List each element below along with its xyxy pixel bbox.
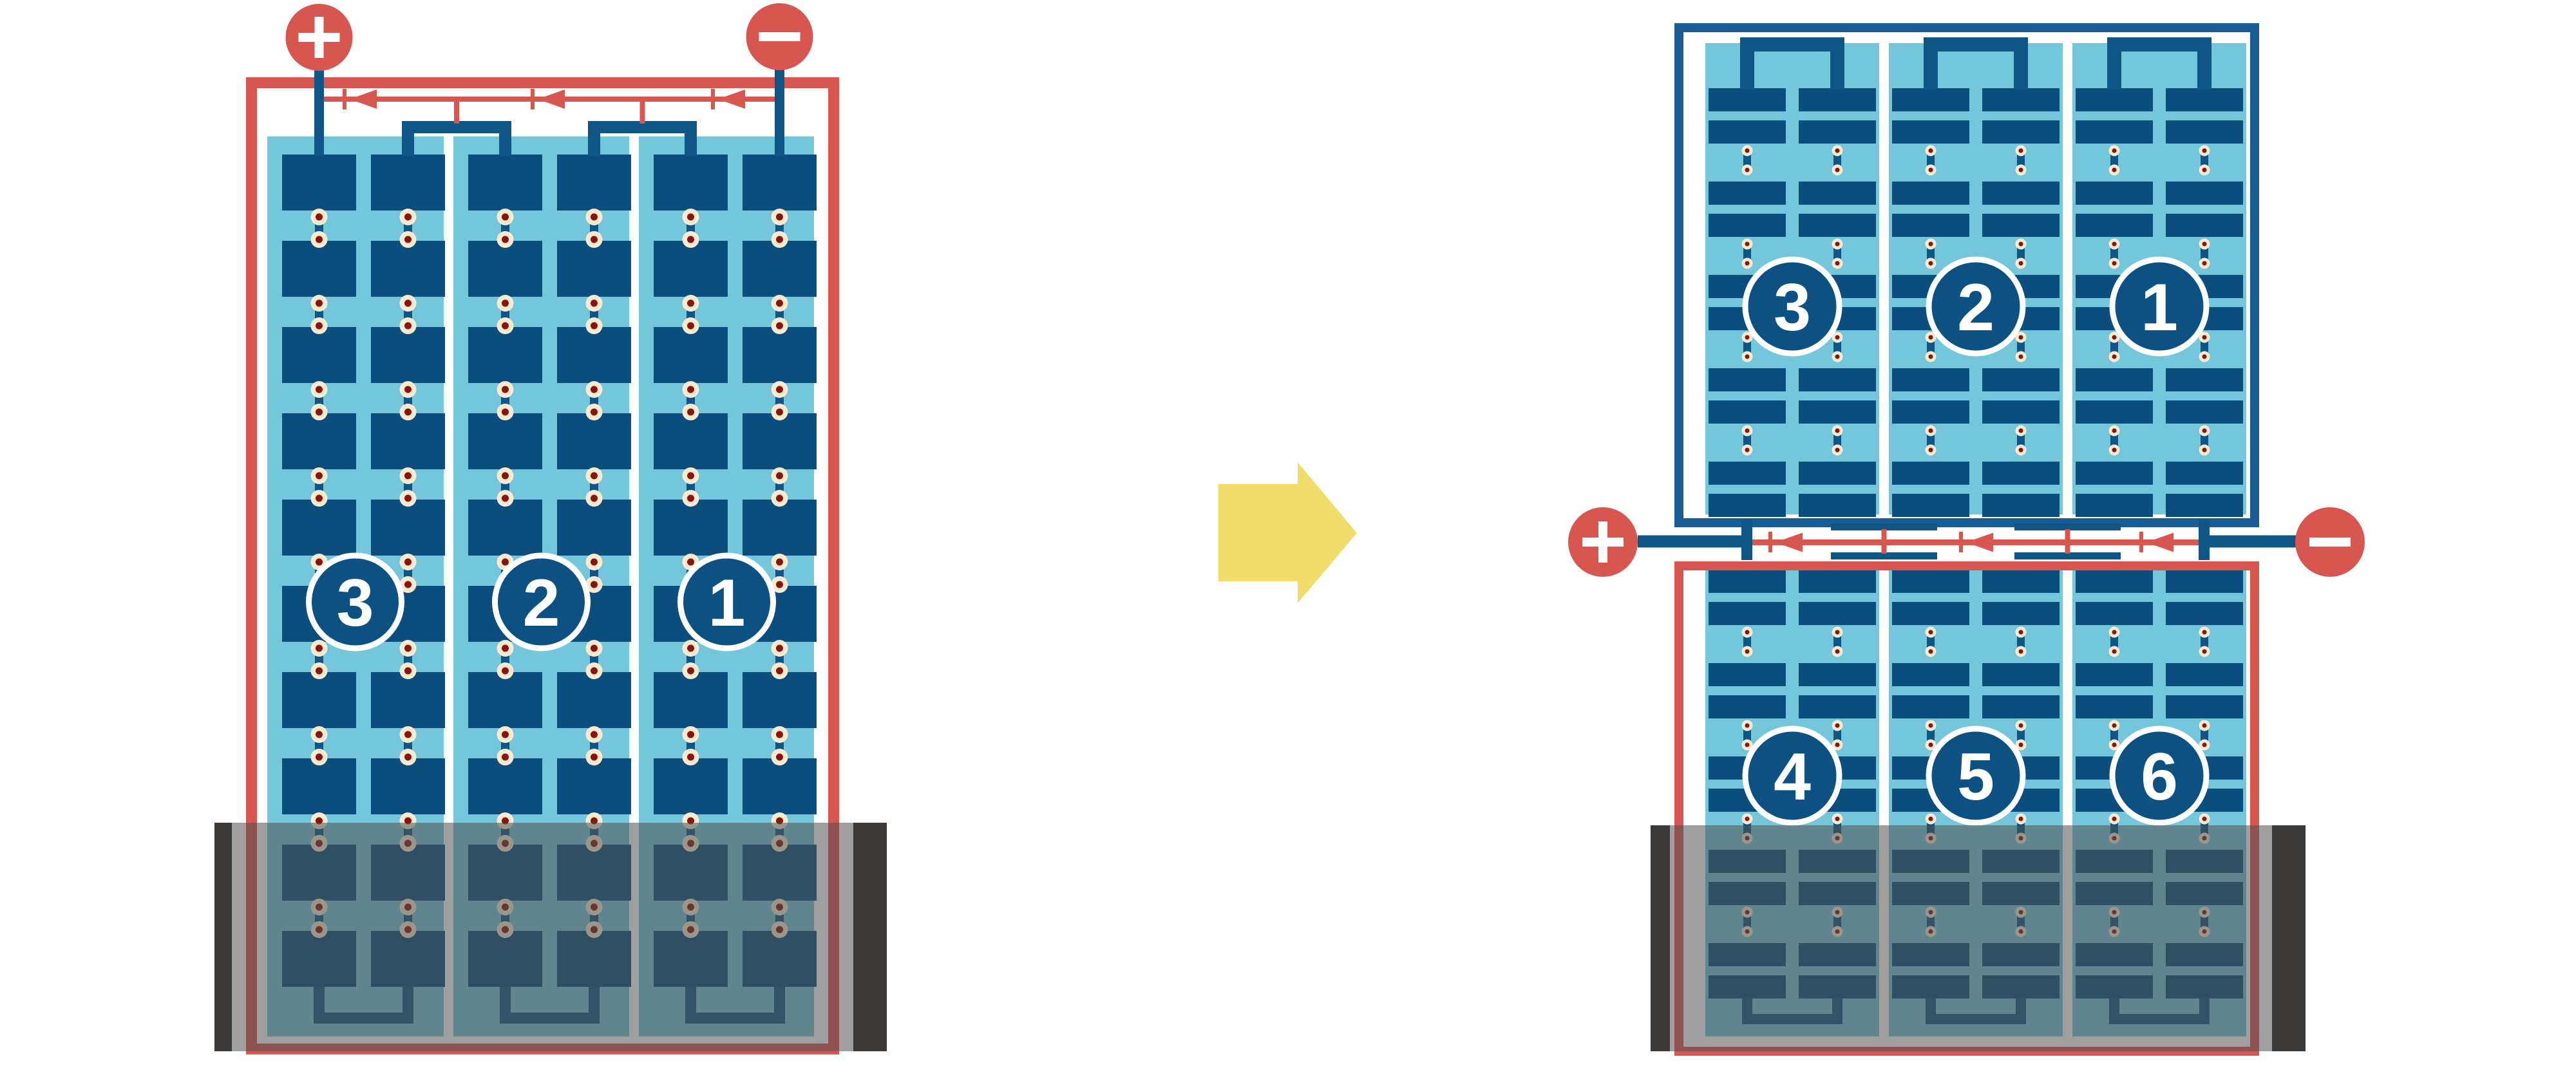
solder-dot-center bbox=[502, 668, 509, 675]
solar-cell bbox=[2166, 88, 2243, 111]
solder-dot-center bbox=[1835, 429, 1840, 433]
solder-dot-center bbox=[2112, 335, 2117, 340]
solder-dot-center bbox=[502, 236, 509, 243]
solder-dot-center bbox=[316, 323, 323, 330]
solder-dot-center bbox=[1929, 261, 1933, 266]
solar-cell bbox=[371, 413, 445, 469]
solder-dot-center bbox=[776, 645, 783, 652]
solar-cell bbox=[743, 500, 817, 556]
negative-terminal bbox=[746, 3, 813, 70]
solder-dot-center bbox=[502, 754, 509, 761]
solder-dot-center bbox=[776, 214, 783, 221]
solar-cell bbox=[1799, 695, 1876, 718]
string-number: 2 bbox=[523, 566, 560, 641]
minus-icon bbox=[2309, 538, 2351, 547]
solar-cell bbox=[371, 758, 445, 814]
solar-cell bbox=[743, 672, 817, 728]
solder-dot-center bbox=[2112, 724, 2117, 728]
solar-cell bbox=[743, 241, 817, 297]
solar-cell bbox=[1982, 214, 2060, 237]
solder-dot-center bbox=[1745, 168, 1750, 173]
solder-dot-center bbox=[404, 645, 412, 652]
solar-cell bbox=[1892, 570, 1969, 593]
solar-cell bbox=[1982, 182, 2060, 205]
solder-dot-center bbox=[2112, 630, 2117, 635]
solar-cell bbox=[2076, 368, 2153, 391]
solar-cell bbox=[2076, 602, 2153, 625]
positive-terminal bbox=[1568, 507, 1638, 577]
solar-cell bbox=[1892, 214, 1969, 237]
solar-cell bbox=[1982, 494, 2060, 517]
shade-overlay bbox=[214, 823, 887, 1051]
solder-dot-center bbox=[502, 386, 509, 393]
solder-dot-center bbox=[2019, 817, 2023, 821]
solar-cell bbox=[1982, 462, 2060, 485]
solder-dot-center bbox=[591, 386, 598, 393]
solder-dot-center bbox=[1745, 261, 1750, 266]
diode-cathode-bar bbox=[1768, 532, 1772, 552]
solder-dot-center bbox=[591, 645, 598, 652]
solder-dot-center bbox=[591, 473, 598, 480]
solder-dot-center bbox=[591, 731, 598, 738]
right-module-top-half: 3 2 1 bbox=[1679, 28, 2255, 523]
solder-dot-center bbox=[404, 668, 412, 675]
solder-dot-center bbox=[591, 300, 598, 307]
solder-dot-center bbox=[316, 214, 323, 221]
solar-cell bbox=[1892, 88, 1969, 111]
diode-triangle bbox=[350, 89, 377, 109]
solar-cell bbox=[654, 500, 728, 556]
solder-dot-center bbox=[2019, 168, 2023, 173]
solder-dot-center bbox=[1835, 448, 1840, 453]
solar-cell bbox=[743, 327, 817, 383]
solder-dot-center bbox=[316, 236, 323, 243]
solder-dot-center bbox=[776, 581, 783, 588]
solder-dot-center bbox=[502, 731, 509, 738]
solder-dot-center bbox=[1835, 242, 1840, 247]
solder-dot-center bbox=[776, 473, 783, 480]
diode-triangle bbox=[1776, 533, 1803, 552]
string-badge: 2 bbox=[495, 556, 588, 648]
solar-cell bbox=[1982, 88, 2060, 111]
solar-cell bbox=[1709, 88, 1786, 111]
solar-cell bbox=[557, 241, 631, 297]
right-top-column-gap-1 bbox=[1879, 43, 1889, 514]
solar-cell bbox=[2166, 214, 2243, 237]
solar-cell bbox=[1892, 400, 1969, 424]
solar-cell bbox=[1892, 663, 1969, 686]
string-number: 6 bbox=[2141, 740, 2178, 814]
diode-tap-stub bbox=[1882, 529, 1887, 554]
solder-dot-center bbox=[404, 473, 412, 480]
solar-cell bbox=[1799, 602, 1876, 625]
solder-dot-center bbox=[687, 495, 694, 502]
solar-cell bbox=[1709, 182, 1786, 205]
solder-dot-center bbox=[2202, 335, 2207, 340]
solder-dot-center bbox=[316, 754, 323, 761]
solder-dot-center bbox=[1745, 242, 1750, 247]
solder-dot-center bbox=[502, 559, 509, 566]
solar-cell bbox=[2076, 88, 2153, 111]
solar-cell bbox=[1982, 120, 2060, 144]
solar-cell bbox=[1799, 494, 1876, 517]
string-badge: 2 bbox=[1929, 259, 2023, 353]
diode-triangle bbox=[2146, 533, 2173, 552]
solar-cell bbox=[2166, 120, 2243, 144]
solder-dot-center bbox=[687, 645, 694, 652]
solder-dot-center bbox=[2202, 743, 2207, 747]
solar-cell bbox=[1709, 494, 1786, 517]
junction-side-bar bbox=[1741, 519, 1752, 560]
solder-dot-center bbox=[404, 323, 412, 330]
minus-icon bbox=[759, 32, 800, 41]
diagram-stage: 3 2 1 3 2 bbox=[0, 0, 2576, 1068]
solar-cell bbox=[557, 327, 631, 383]
solder-dot-center bbox=[2112, 429, 2117, 433]
solder-dot-center bbox=[2019, 355, 2023, 359]
solar-cell bbox=[1892, 602, 1969, 625]
solder-dot-center bbox=[2202, 261, 2207, 266]
solder-dot-center bbox=[1835, 817, 1840, 821]
solar-cell bbox=[2076, 120, 2153, 144]
solder-dot-center bbox=[2202, 630, 2207, 635]
solder-dot-center bbox=[1929, 335, 1933, 340]
diode-cathode-bar bbox=[711, 89, 715, 109]
solar-cell bbox=[1799, 462, 1876, 485]
solder-dot-center bbox=[591, 559, 598, 566]
solder-dot-center bbox=[404, 214, 412, 221]
solder-dot-center bbox=[2112, 168, 2117, 173]
string-number: 1 bbox=[2141, 270, 2178, 345]
solar-cell bbox=[557, 758, 631, 814]
solar-cell bbox=[1709, 368, 1786, 391]
solder-dot-center bbox=[404, 386, 412, 393]
solar-cell bbox=[371, 327, 445, 383]
negative-terminal bbox=[2295, 507, 2365, 577]
solder-dot-center bbox=[2112, 242, 2117, 247]
string-badge: 3 bbox=[309, 556, 402, 648]
solder-dot-center bbox=[502, 214, 509, 221]
string-number: 4 bbox=[1774, 740, 1811, 814]
solar-cell bbox=[1892, 462, 1969, 485]
solder-dot-center bbox=[1929, 242, 1933, 247]
solder-dot-center bbox=[776, 409, 783, 416]
solar-cell bbox=[1709, 120, 1786, 144]
solder-dot-center bbox=[316, 645, 323, 652]
solder-dot-center bbox=[1835, 149, 1840, 153]
solder-dot-center bbox=[404, 559, 412, 566]
solder-dot-center bbox=[1929, 724, 1933, 728]
diode-cathode-bar bbox=[1959, 532, 1963, 552]
solder-dot-center bbox=[316, 731, 323, 738]
solder-dot-center bbox=[776, 323, 783, 330]
solder-dot-center bbox=[316, 668, 323, 675]
solder-dot-center bbox=[1929, 630, 1933, 635]
shade-edge-bar bbox=[853, 823, 887, 1051]
solar-cell bbox=[371, 155, 445, 211]
solder-dot-center bbox=[687, 386, 694, 393]
solder-dot-center bbox=[502, 323, 509, 330]
solar-cell bbox=[743, 413, 817, 469]
solder-dot-center bbox=[2112, 355, 2117, 359]
solar-cell bbox=[468, 241, 542, 297]
diode-cathode-bar bbox=[343, 89, 346, 109]
solder-dot-center bbox=[2112, 743, 2117, 747]
solar-cell bbox=[2166, 695, 2243, 718]
solar-cell bbox=[2076, 695, 2153, 718]
solar-cell bbox=[1799, 368, 1876, 391]
solder-dot-center bbox=[687, 754, 694, 761]
solder-dot-center bbox=[1745, 650, 1750, 654]
solder-dot-center bbox=[776, 495, 783, 502]
solder-dot-center bbox=[2202, 650, 2207, 654]
solder-dot-center bbox=[1929, 168, 1933, 173]
solder-dot-center bbox=[776, 236, 783, 243]
solder-dot-center bbox=[687, 323, 694, 330]
solder-dot-center bbox=[776, 731, 783, 738]
solar-cell bbox=[1799, 570, 1876, 593]
diode-cathode-bar bbox=[2139, 532, 2143, 552]
string-number: 3 bbox=[1774, 270, 1811, 345]
solar-cell bbox=[1892, 494, 1969, 517]
solar-cell bbox=[2166, 602, 2243, 625]
solar-cell bbox=[1982, 663, 2060, 686]
solder-dot-center bbox=[2112, 650, 2117, 654]
solar-cell bbox=[2166, 570, 2243, 593]
solar-cell bbox=[654, 155, 728, 211]
solar-cell bbox=[654, 327, 728, 383]
solar-cell bbox=[371, 672, 445, 728]
solder-dot-center bbox=[502, 495, 509, 502]
solar-cell bbox=[2166, 462, 2243, 485]
shade-edge-bar bbox=[2272, 825, 2306, 1051]
solder-dot-center bbox=[591, 214, 598, 221]
solder-dot-center bbox=[1835, 335, 1840, 340]
solder-dot-center bbox=[502, 300, 509, 307]
solder-dot-center bbox=[776, 754, 783, 761]
positive-terminal-lead bbox=[1638, 536, 1741, 548]
string-badge: 6 bbox=[2112, 729, 2206, 823]
solar-cell bbox=[2166, 494, 2243, 517]
solder-dot-center bbox=[591, 495, 598, 502]
solder-dot-center bbox=[1929, 149, 1933, 153]
solder-dot-center bbox=[687, 668, 694, 675]
solder-dot-center bbox=[776, 300, 783, 307]
solder-dot-center bbox=[2202, 724, 2207, 728]
solar-cell bbox=[468, 672, 542, 728]
solder-dot-center bbox=[404, 731, 412, 738]
solar-cell bbox=[1709, 400, 1786, 424]
solder-dot-center bbox=[2112, 261, 2117, 266]
solder-dot-center bbox=[1929, 650, 1933, 654]
solar-cell bbox=[1982, 400, 2060, 424]
solar-cell bbox=[557, 155, 631, 211]
solder-dot-center bbox=[2202, 429, 2207, 433]
solar-cell bbox=[282, 672, 356, 728]
solder-dot-center bbox=[2202, 817, 2207, 821]
junction-side-bar bbox=[2199, 519, 2210, 560]
solder-dot-center bbox=[1929, 817, 1933, 821]
string-badge: 3 bbox=[1745, 259, 1839, 353]
solder-dot-center bbox=[2019, 335, 2023, 340]
solder-dot-center bbox=[316, 409, 323, 416]
solar-cell bbox=[2076, 663, 2153, 686]
solder-dot-center bbox=[2019, 429, 2023, 433]
solar-cell bbox=[2076, 182, 2153, 205]
solder-dot-center bbox=[1745, 355, 1750, 359]
solder-dot-center bbox=[1835, 650, 1840, 654]
solder-dot-center bbox=[591, 754, 598, 761]
solar-cell bbox=[654, 758, 728, 814]
shade-edge-bar bbox=[1651, 825, 1670, 1051]
solder-dot-center bbox=[687, 409, 694, 416]
solder-dot-center bbox=[1835, 724, 1840, 728]
solder-dot-center bbox=[1745, 448, 1750, 453]
solder-dot-center bbox=[2202, 149, 2207, 153]
solar-cell bbox=[282, 413, 356, 469]
solder-dot-center bbox=[2019, 149, 2023, 153]
solder-dot-center bbox=[2019, 724, 2023, 728]
solar-cell bbox=[1892, 120, 1969, 144]
diode-cathode-bar bbox=[531, 89, 535, 109]
solder-dot-center bbox=[591, 409, 598, 416]
solder-dot-center bbox=[1929, 429, 1933, 433]
solar-cell bbox=[1799, 663, 1876, 686]
solar-cell bbox=[557, 672, 631, 728]
diode-tap-stub bbox=[454, 98, 459, 124]
solder-dot-center bbox=[776, 386, 783, 393]
solar-cell bbox=[2166, 663, 2243, 686]
right-top-column-gap-2 bbox=[2063, 43, 2072, 514]
string-badge: 1 bbox=[2112, 259, 2206, 353]
solar-module-wiring-diagram: 3 2 1 3 2 bbox=[0, 0, 2576, 1068]
solder-dot-center bbox=[2112, 817, 2117, 821]
solder-dot-center bbox=[687, 236, 694, 243]
solder-dot-center bbox=[776, 559, 783, 566]
solar-cell bbox=[282, 500, 356, 556]
diode-tap-stub bbox=[2065, 529, 2070, 554]
solder-dot-center bbox=[2202, 355, 2207, 359]
solar-cell bbox=[1709, 695, 1786, 718]
solder-dot-center bbox=[1745, 817, 1750, 821]
solder-dot-center bbox=[2019, 743, 2023, 747]
solder-dot-center bbox=[404, 300, 412, 307]
solar-cell bbox=[282, 758, 356, 814]
positive-terminal bbox=[286, 4, 353, 71]
shade-overlay bbox=[1651, 825, 2306, 1051]
solder-dot-center bbox=[687, 300, 694, 307]
left-module: 3 2 1 bbox=[214, 3, 887, 1051]
solder-dot-center bbox=[1745, 429, 1750, 433]
solder-dot-center bbox=[591, 323, 598, 330]
string-badge: 1 bbox=[681, 556, 773, 648]
solder-dot-center bbox=[591, 668, 598, 675]
string-number: 5 bbox=[1957, 740, 1994, 814]
negative-terminal-stem bbox=[775, 64, 784, 156]
solder-dot-center bbox=[1835, 261, 1840, 266]
solder-dot-center bbox=[404, 236, 412, 243]
solar-cell bbox=[1799, 88, 1876, 111]
solder-dot-center bbox=[1745, 724, 1750, 728]
solder-dot-center bbox=[404, 495, 412, 502]
solder-dot-center bbox=[687, 214, 694, 221]
solar-cell bbox=[2166, 400, 2243, 424]
solar-cell bbox=[2076, 570, 2153, 593]
solar-cell bbox=[654, 241, 728, 297]
solar-cell bbox=[1982, 368, 2060, 391]
solder-dot-center bbox=[2112, 448, 2117, 453]
solar-cell bbox=[743, 758, 817, 814]
solder-dot-center bbox=[1745, 335, 1750, 340]
solar-cell bbox=[468, 500, 542, 556]
solder-dot-center bbox=[776, 668, 783, 675]
solder-dot-center bbox=[1929, 743, 1933, 747]
solder-dot-center bbox=[2019, 242, 2023, 247]
solder-dot-center bbox=[2202, 448, 2207, 453]
solder-dot-center bbox=[316, 300, 323, 307]
positive-terminal-stem bbox=[314, 64, 324, 156]
solar-cell bbox=[468, 758, 542, 814]
solder-dot-center bbox=[316, 473, 323, 480]
solder-dot-center bbox=[687, 731, 694, 738]
solar-cell bbox=[1799, 214, 1876, 237]
solder-dot-center bbox=[1745, 630, 1750, 635]
solder-dot-center bbox=[502, 409, 509, 416]
solder-dot-center bbox=[591, 236, 598, 243]
solar-cell bbox=[1892, 695, 1969, 718]
solar-cell bbox=[2076, 462, 2153, 485]
solder-dot-center bbox=[2202, 168, 2207, 173]
solder-dot-center bbox=[404, 581, 412, 588]
transform-arrow-icon bbox=[1218, 462, 1357, 603]
solder-dot-center bbox=[1929, 355, 1933, 359]
solar-cell bbox=[371, 500, 445, 556]
solder-dot-center bbox=[591, 581, 598, 588]
solar-cell bbox=[2076, 494, 2153, 517]
solar-cell bbox=[468, 155, 542, 211]
negative-terminal-lead bbox=[2210, 536, 2300, 548]
solar-cell bbox=[654, 672, 728, 728]
solar-cell bbox=[743, 155, 817, 211]
solar-cell bbox=[1799, 400, 1876, 424]
solar-cell bbox=[557, 500, 631, 556]
string-number: 3 bbox=[337, 566, 374, 641]
solar-cell bbox=[1892, 182, 1969, 205]
solder-dot-center bbox=[502, 645, 509, 652]
solder-dot-center bbox=[2112, 149, 2117, 153]
diode-triangle bbox=[538, 89, 565, 109]
solar-cell bbox=[1982, 695, 2060, 718]
solar-cell bbox=[1799, 182, 1876, 205]
solar-cell bbox=[282, 155, 356, 211]
diode-triangle bbox=[1966, 533, 1993, 552]
solar-cell bbox=[654, 413, 728, 469]
solar-cell bbox=[2166, 368, 2243, 391]
solar-cell bbox=[1709, 663, 1786, 686]
solar-cell bbox=[1799, 120, 1876, 144]
solar-cell bbox=[1709, 570, 1786, 593]
string-badge: 4 bbox=[1745, 729, 1839, 823]
solder-dot-center bbox=[1745, 149, 1750, 153]
solar-cell bbox=[1892, 368, 1969, 391]
diode-tap-stub bbox=[640, 98, 645, 124]
solder-dot-center bbox=[2019, 448, 2023, 453]
string-number: 2 bbox=[1957, 270, 1994, 345]
solar-cell bbox=[1709, 214, 1786, 237]
solar-cell bbox=[1982, 602, 2060, 625]
solder-dot-center bbox=[687, 559, 694, 566]
solder-dot-center bbox=[404, 409, 412, 416]
